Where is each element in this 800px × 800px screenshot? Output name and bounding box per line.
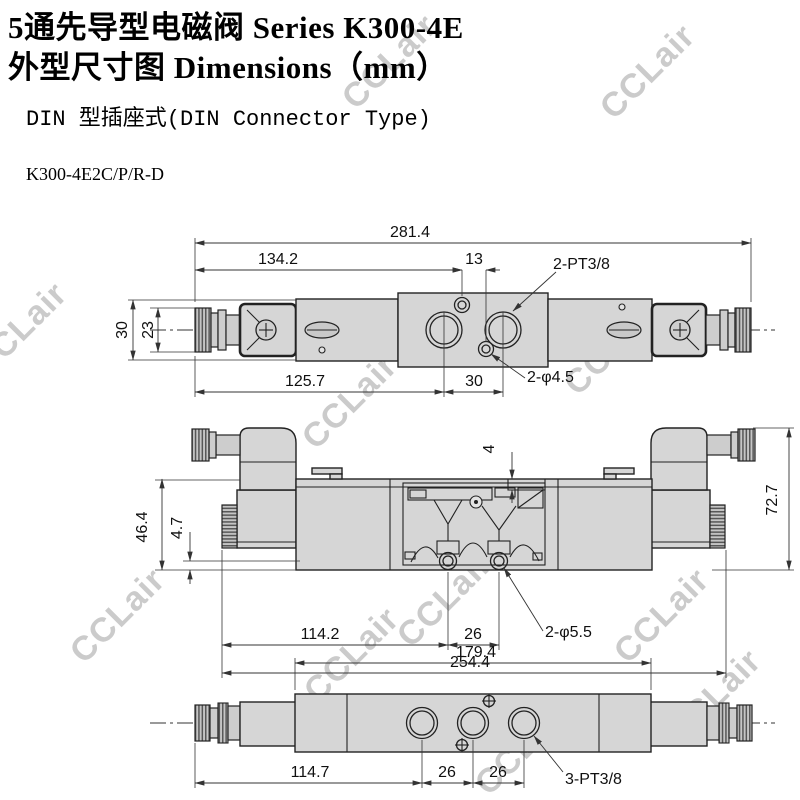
gland-collar [209,432,216,458]
dim-label: 23 [140,321,157,339]
dim-label: 72.7 [764,484,781,515]
solenoid-coil [651,490,710,548]
dim-label: 4 [481,444,498,453]
top-view: 281.4 134.2 13 2-PT3/8 30 [114,224,775,397]
connector-cylinder [649,702,707,746]
gland-ring [226,315,240,345]
page: CCLair CCLair CCLair CCLair CCLair CCLai… [0,0,800,800]
dim-label: 134.2 [258,251,298,268]
dim-label: 281.4 [390,224,430,241]
gland-stem [707,435,731,455]
page-title-line1: 5通先导型电磁阀 Series K300-4E [8,2,464,47]
dim-label: 114.2 [301,626,340,643]
dim-label: 179.4 [456,644,496,661]
dim-front-hole-spacing: 26 [448,572,499,650]
page-title-line2: 外型尺寸图 Dimensions（mm） [8,42,448,87]
dim-label: 114.7 [291,764,330,781]
port-thread-label: 3-PT3/8 [565,771,622,788]
coil-nut-knurl [710,505,725,548]
dim-label: 4.7 [169,517,186,539]
gland-ring [729,708,737,738]
port-thread-label: 2-PT3/8 [553,256,610,273]
mounting-tab [312,468,342,474]
cable-gland-knurl [195,705,210,741]
valve-body [296,479,652,570]
connector-cylinder [240,702,298,746]
gland-ring [228,706,240,740]
gland-ring [218,703,228,743]
din-connector [651,428,707,490]
gland-ring [728,313,735,347]
gland-collar [731,432,738,458]
valve-port-block [398,293,548,367]
dim-top-hole-offset: 134.2 [195,251,462,296]
gland-ring [719,703,729,743]
mounting-tab [330,474,342,479]
connector-type-heading: DIN 型插座式(DIN Connector Type) [26,100,431,132]
small-hole [319,347,325,353]
cable-gland-knurl [738,429,755,461]
front-view: 4 46.4 4.7 72.7 [134,428,794,678]
dim-label: 26 [489,764,507,781]
dim-label: 26 [438,764,456,781]
cable-gland-knurl [735,308,751,352]
mount-hole-label: 2-φ4.5 [527,369,574,386]
dim-label: 26 [464,626,482,643]
gland-ring [720,310,728,350]
cable-gland-knurl [737,705,752,741]
gland-ring [707,706,719,740]
mount-hole-label: 2-φ5.5 [545,624,592,641]
gland-ring [706,315,720,345]
dim-label: 125.7 [285,373,325,390]
cable-gland-knurl [195,308,211,352]
gland-ring [210,708,218,738]
dim-label: 13 [465,251,483,268]
gland-ring [211,313,218,347]
mounting-tab [604,468,634,474]
coil-nut-knurl [222,505,237,548]
dim-label: 46.4 [134,511,151,542]
gland-stem [216,435,240,455]
model-number: K300-4E2C/P/R-D [26,164,164,185]
cable-gland-knurl [192,429,209,461]
gland-ring [218,310,226,350]
mounting-tab [604,474,616,479]
label-front-mount-hole: 2-φ5.5 [504,568,592,641]
small-hole [619,304,625,310]
dim-label: 30 [465,373,483,390]
dim-label: 30 [114,321,131,339]
solenoid-coil [237,490,296,548]
din-connector [240,428,296,490]
